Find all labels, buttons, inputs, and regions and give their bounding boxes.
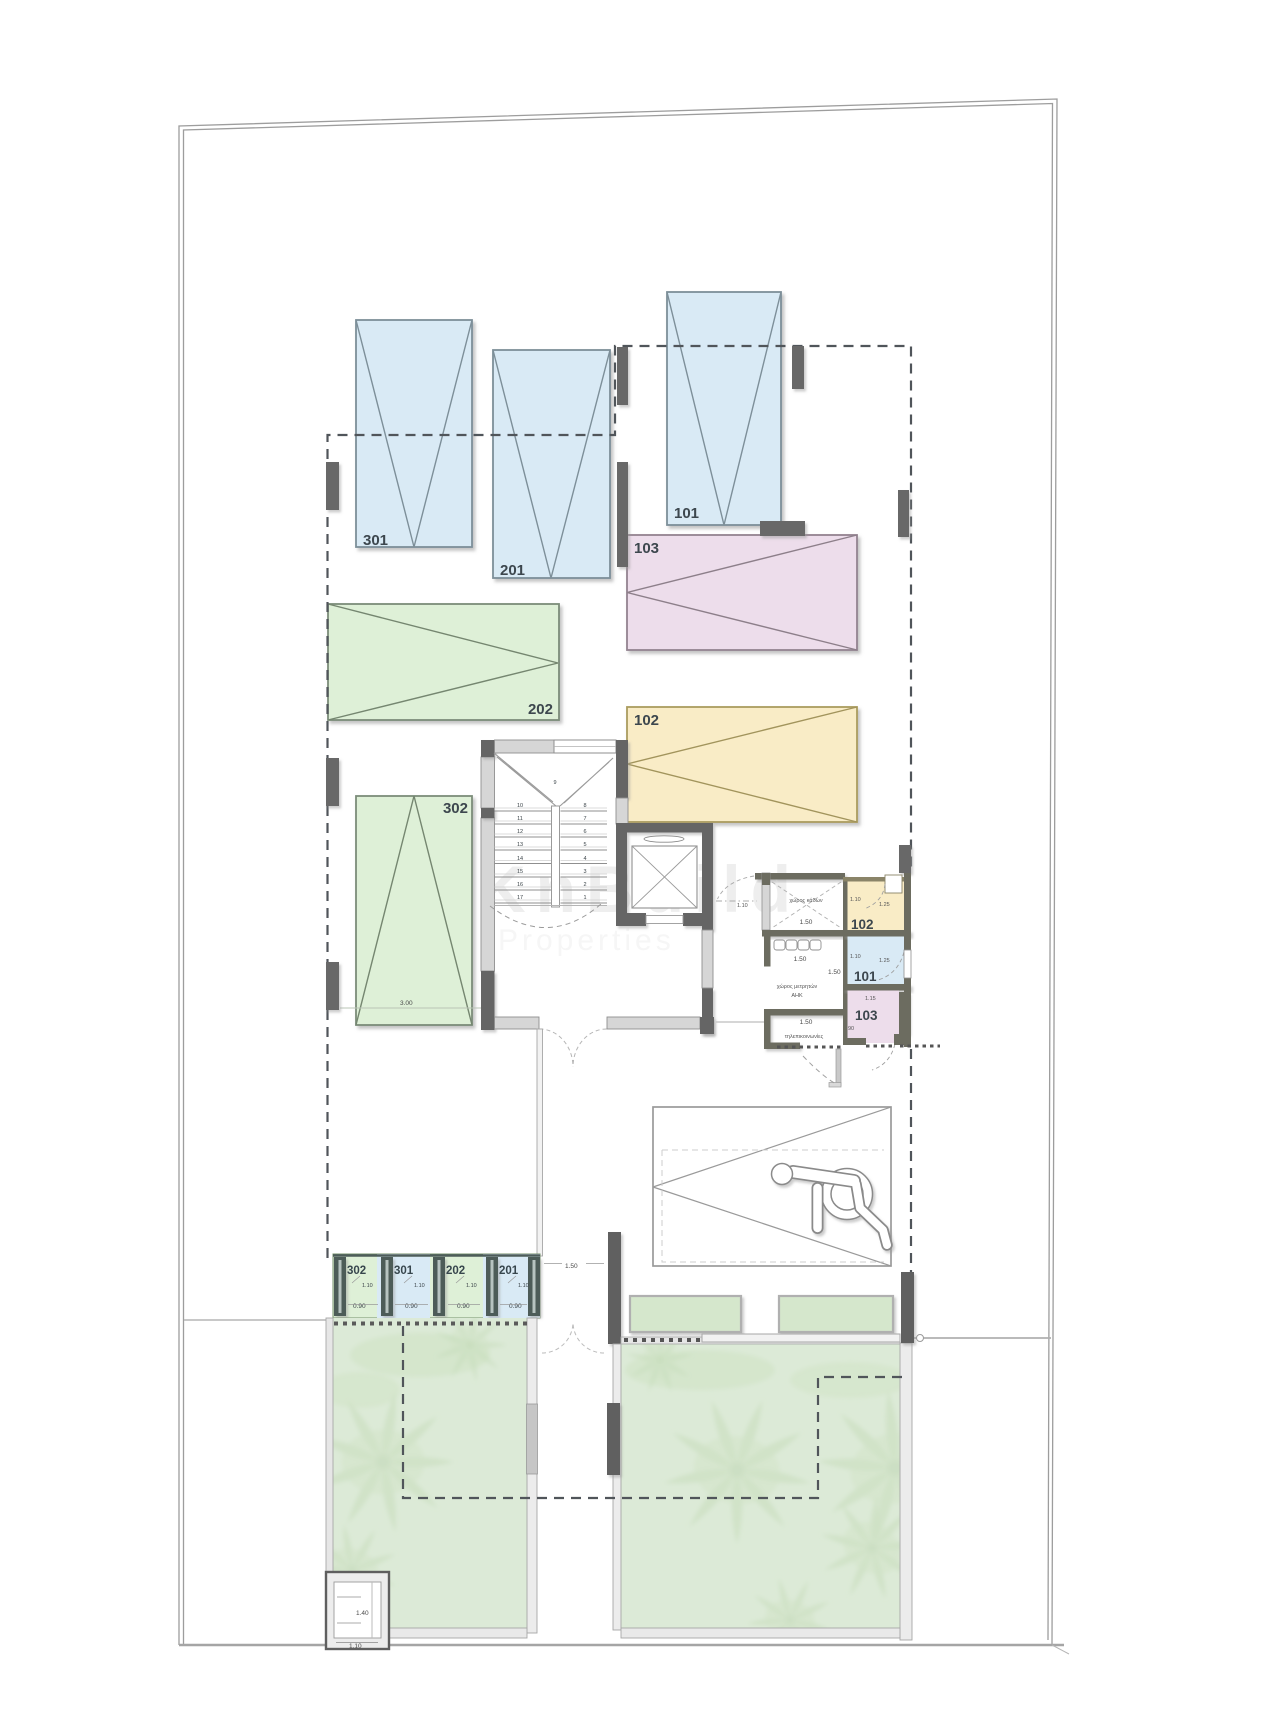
- svg-text:302: 302: [443, 800, 468, 817]
- svg-text:1.10: 1.10: [414, 1283, 425, 1289]
- svg-text:1.10: 1.10: [349, 1643, 362, 1650]
- svg-text:202: 202: [446, 1265, 465, 1277]
- svg-text:2: 2: [583, 882, 586, 888]
- svg-text:8: 8: [583, 803, 586, 809]
- svg-text:302: 302: [347, 1265, 366, 1277]
- svg-text:16: 16: [517, 882, 523, 888]
- svg-text:14: 14: [517, 856, 523, 862]
- svg-text:102: 102: [634, 712, 659, 729]
- svg-text:4: 4: [583, 856, 586, 862]
- svg-text:1.50: 1.50: [800, 919, 813, 926]
- svg-text:1.10: 1.10: [518, 1283, 529, 1289]
- svg-text:15: 15: [517, 869, 523, 875]
- svg-text:1.50: 1.50: [794, 956, 807, 963]
- svg-text:103: 103: [855, 1008, 878, 1023]
- svg-text:1.50: 1.50: [800, 1019, 813, 1026]
- svg-text:17: 17: [517, 895, 523, 901]
- svg-text:9: 9: [553, 780, 556, 786]
- svg-text:ΑΗΚ: ΑΗΚ: [791, 993, 803, 999]
- svg-text:7: 7: [583, 816, 586, 822]
- svg-text:3: 3: [583, 869, 586, 875]
- svg-text:90: 90: [848, 1026, 854, 1032]
- svg-text:10: 10: [517, 803, 523, 809]
- svg-text:1.10: 1.10: [850, 897, 861, 903]
- svg-text:301: 301: [363, 532, 388, 549]
- svg-text:103: 103: [634, 540, 659, 557]
- svg-text:1.10: 1.10: [850, 954, 861, 960]
- svg-text:1.50: 1.50: [565, 1263, 578, 1270]
- svg-text:6: 6: [583, 829, 586, 835]
- svg-text:1.10: 1.10: [737, 903, 748, 909]
- svg-text:1.25: 1.25: [879, 958, 890, 964]
- svg-text:301: 301: [394, 1265, 414, 1277]
- svg-text:τηλεπικοινωνίες: τηλεπικοινωνίες: [785, 1034, 824, 1040]
- svg-text:201: 201: [500, 562, 525, 579]
- svg-text:0.90: 0.90: [353, 1303, 366, 1310]
- svg-text:1.50: 1.50: [828, 969, 841, 976]
- svg-text:12: 12: [517, 829, 523, 835]
- svg-text:13: 13: [517, 842, 523, 848]
- svg-text:1.15: 1.15: [865, 996, 876, 1002]
- svg-text:11: 11: [517, 816, 523, 822]
- svg-text:1.40: 1.40: [356, 1610, 369, 1617]
- svg-text:χώρος μετρητών: χώρος μετρητών: [777, 983, 818, 990]
- svg-text:102: 102: [851, 917, 874, 932]
- svg-text:3.00: 3.00: [400, 1000, 413, 1007]
- svg-text:1: 1: [583, 895, 586, 901]
- svg-text:101: 101: [854, 969, 877, 984]
- svg-text:1.10: 1.10: [362, 1283, 373, 1289]
- svg-text:1.25: 1.25: [879, 902, 890, 908]
- svg-text:Properties: Properties: [498, 924, 675, 957]
- svg-text:1.10: 1.10: [466, 1283, 477, 1289]
- svg-text:0.90: 0.90: [405, 1303, 418, 1310]
- svg-text:201: 201: [499, 1265, 519, 1277]
- svg-text:202: 202: [528, 701, 553, 718]
- svg-text:101: 101: [674, 505, 699, 522]
- svg-text:0.90: 0.90: [509, 1303, 522, 1310]
- svg-text:χώρος κάδων: χώρος κάδων: [789, 897, 823, 904]
- svg-text:0.90: 0.90: [457, 1303, 470, 1310]
- svg-text:5: 5: [583, 842, 586, 848]
